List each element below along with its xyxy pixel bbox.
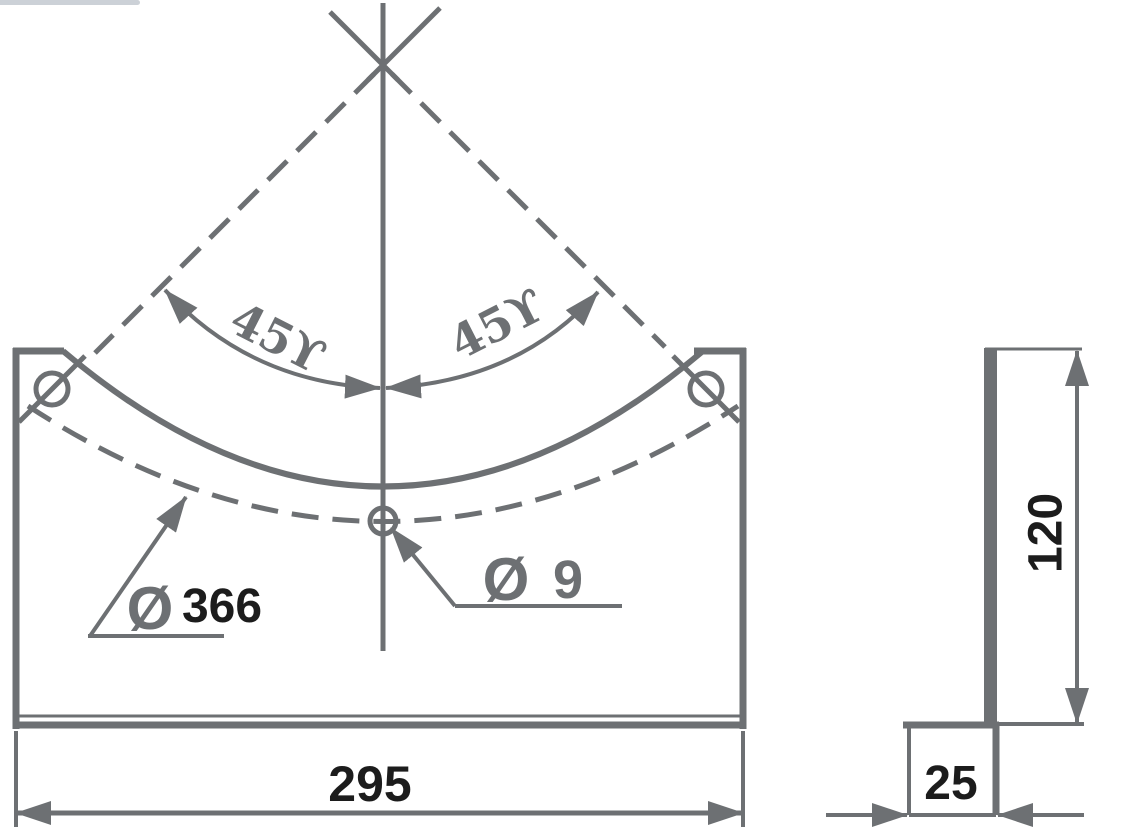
foot-dim-label: 25 [924,757,977,810]
dia366-value: 366 [182,580,262,633]
width-dim-label: 295 [328,756,411,812]
technical-drawing: 45ϒ 45ϒ Ø 366 Ø 9 295 120 25 [0,0,1136,837]
side-view-plate-section [984,348,997,722]
dia366-symbol: Ø [127,575,174,642]
height-dim-label: 120 [1020,493,1073,573]
apex-cross-segment-right [330,12,398,80]
dia9-symbol: Ø [483,546,530,613]
dia9-value: 9 [553,550,583,610]
angle-dim-label-right: 45ϒ [441,277,554,370]
drawing-sheet: 45ϒ 45ϒ Ø 366 Ø 9 295 120 25 [0,0,1136,837]
apex-cross-segment-left [368,8,440,80]
angle-dim-label-left: 45ϒ [222,291,335,384]
radial-construction-line-left [95,74,374,353]
hole-centermark-left [19,356,85,422]
dia9-leader-line [391,528,455,606]
